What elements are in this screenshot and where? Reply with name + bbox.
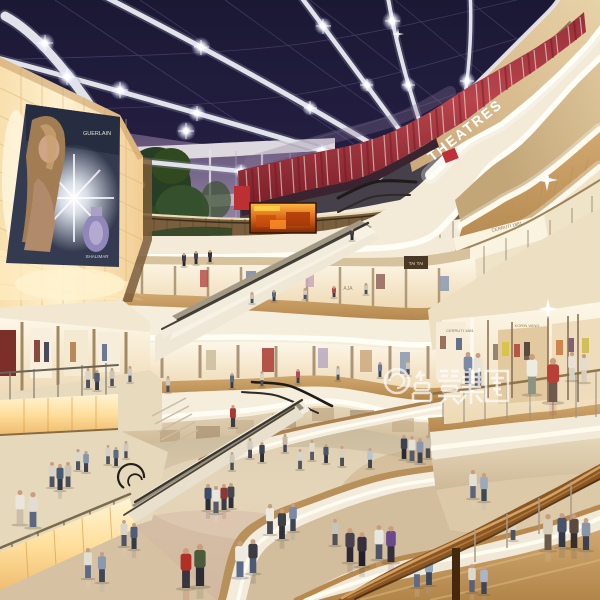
svg-text:GUERLAIN: GUERLAIN [83, 131, 111, 137]
svg-text:TAI TAI: TAI TAI [409, 261, 424, 266]
svg-text:SHALIMAR: SHALIMAR [85, 254, 109, 259]
svg-text:AJA: AJA [343, 286, 353, 292]
svg-text:KORIN WING: KORIN WING [515, 323, 540, 328]
svg-text:CERRUTI 1881: CERRUTI 1881 [446, 328, 475, 333]
